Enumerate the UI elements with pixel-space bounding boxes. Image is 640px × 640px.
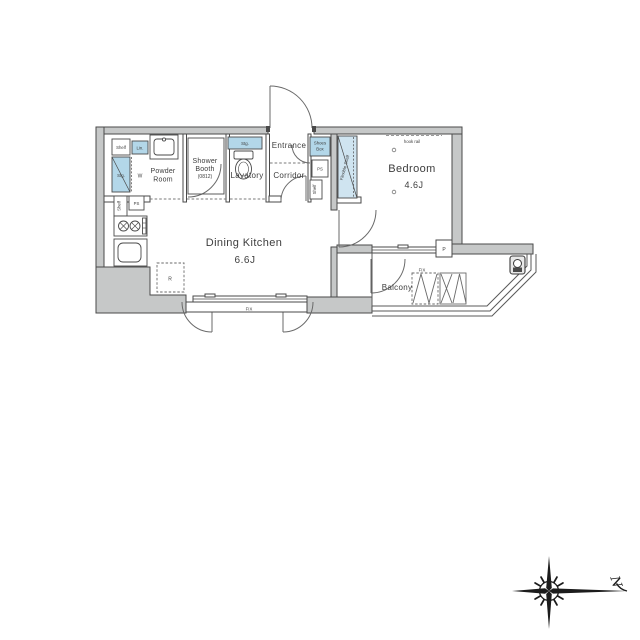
wall-bottom-center-block (307, 297, 372, 313)
wall-right (452, 134, 462, 246)
stove-icon (114, 216, 147, 236)
entrance-jamb-left (266, 126, 270, 132)
shelf-label-1: Shelf (116, 145, 127, 150)
labels: Dining Kitchen 6.6J Bedroom 4.6J Entranc… (116, 139, 436, 312)
floorplan-svg: P R (0, 0, 640, 640)
partition-panel-hatch (441, 274, 466, 303)
fix-label-balcony: FIX (419, 268, 426, 273)
storage-label-powder: Stg. (117, 173, 125, 178)
wall-dk-bedroom-lower (331, 247, 337, 297)
kitchen-sink-icon (114, 239, 147, 266)
dining-kitchen-label: Dining Kitchen (206, 237, 283, 249)
compass-long-spikes (512, 556, 627, 629)
balcony-label: Balcony (382, 283, 413, 292)
dk-window-sash-1 (205, 294, 215, 297)
wall-dk-bedroom-upper (331, 134, 337, 210)
entrance-door-arc (270, 86, 312, 128)
partition-panel-box (440, 273, 466, 304)
hook-rail-label: hook rail (404, 139, 420, 144)
ac-unit-hatch-1 (413, 274, 437, 303)
bedroom-window-sash (398, 245, 408, 248)
wall-balcony-north (452, 244, 533, 254)
lavatory-label: Lavatory (230, 171, 263, 180)
corridor-label: Corridor (273, 171, 304, 180)
entrance-label: Entrance (272, 141, 307, 150)
washstand-icon (150, 135, 178, 159)
storage-label-lavatory: Stg. (241, 141, 249, 146)
ps-label-kitchen: PS (134, 201, 140, 206)
compass-rose: N (512, 556, 627, 629)
partition-corridor-dk (269, 196, 281, 202)
balcony-equipment (412, 273, 466, 304)
flexible-shelf-closet (338, 136, 357, 198)
entrance-jamb-right (312, 126, 316, 132)
linen-label: Lin. (137, 146, 144, 151)
shower-booth-label-3: (0812) (198, 174, 213, 180)
partition-lavatory-corridor (266, 134, 270, 202)
bedroom-label: Bedroom (388, 163, 435, 175)
partition-powder-shower (183, 134, 187, 202)
powder-room-label-1: Powder (151, 168, 176, 175)
dk-window-sash-2 (276, 294, 286, 297)
bedroom-size: 4.6J (404, 180, 423, 190)
shower-booth-label-2: Booth (195, 166, 214, 173)
floorplan-image: P R (0, 0, 640, 640)
shoes-box-label-1: Shoes (314, 141, 326, 146)
hook-circle-2 (392, 190, 396, 194)
evacuation-hatch-icon (510, 256, 525, 274)
pipe-space-box: P (436, 240, 452, 257)
dining-kitchen-size: 6.6J (235, 255, 256, 266)
washer-label: W (138, 174, 143, 180)
shelf-label-kitchen: Shelf (117, 200, 122, 211)
shoes-box-label-2: Box (316, 147, 324, 152)
north-label: N (606, 573, 624, 590)
shower-booth-label-1: Shower (193, 158, 218, 165)
ps-label-corridor: PS (317, 167, 323, 172)
fix-label-dk: FIX (246, 307, 253, 312)
powder-room-label-2: Room (153, 177, 172, 184)
refrigerator-space: R (157, 263, 184, 292)
wall-bottom-left-mass (96, 267, 186, 313)
wall-top-right (314, 127, 462, 134)
hook-circle-1 (392, 148, 396, 152)
shelf-label-corridor: Shelf (312, 184, 317, 195)
wall-bedroom-south (337, 245, 372, 253)
refrigerator-label: R (168, 277, 172, 283)
wall-top-left (96, 127, 268, 134)
bedroom-door-arc (339, 210, 376, 247)
